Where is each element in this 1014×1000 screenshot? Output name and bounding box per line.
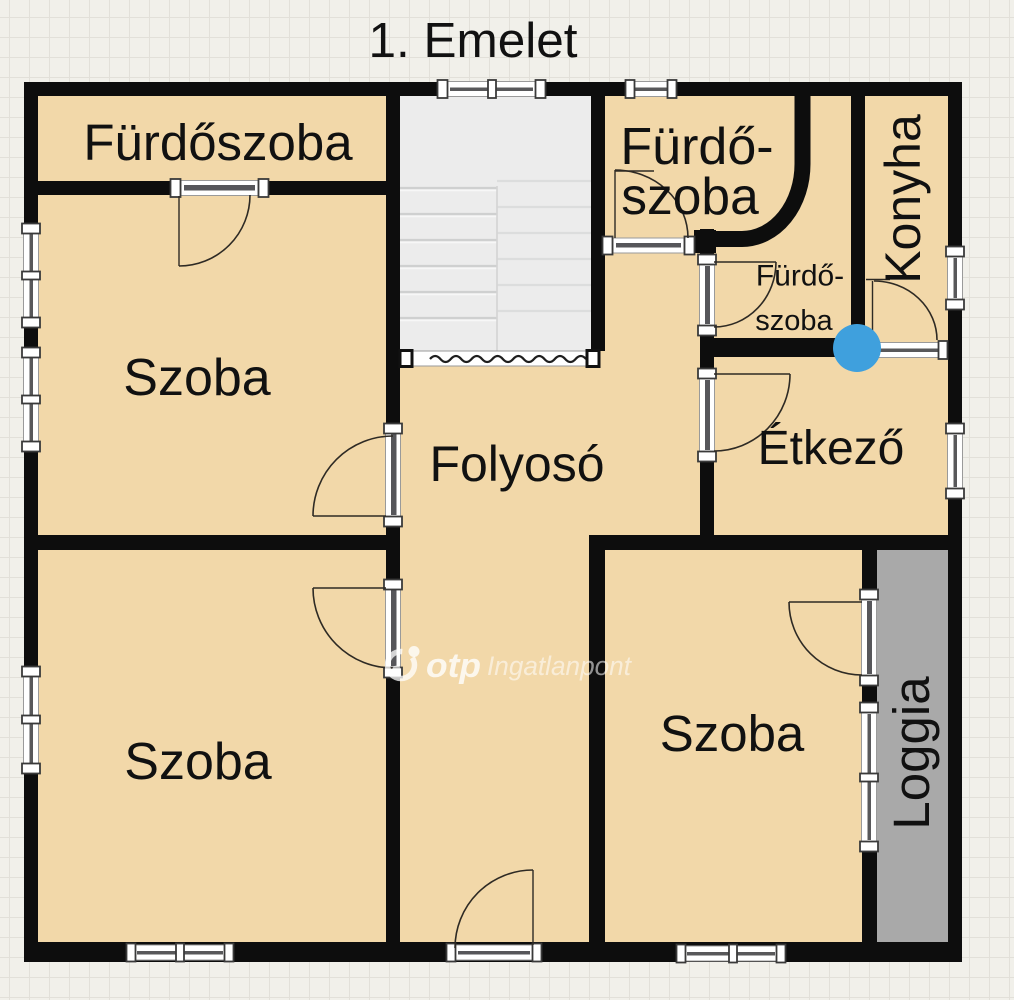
svg-text:otp: otp (426, 647, 481, 685)
svg-text:Ingatlanpont: Ingatlanpont (487, 651, 632, 681)
svg-text:Szoba: Szoba (124, 733, 272, 791)
svg-text:Folyosó: Folyosó (429, 436, 604, 492)
svg-text:Étkező: Étkező (758, 422, 905, 475)
svg-text:Szoba: Szoba (123, 349, 271, 407)
svg-text:Konyha: Konyha (875, 114, 931, 284)
svg-text:szoba: szoba (755, 305, 833, 337)
svg-text:szoba: szoba (621, 167, 759, 225)
svg-text:Loggia: Loggia (883, 676, 940, 830)
svg-text:Szoba: Szoba (660, 705, 805, 762)
svg-text:Fürdő-: Fürdő- (756, 260, 844, 293)
svg-text:Fürdőszoba: Fürdőszoba (83, 114, 353, 171)
svg-text:1. Emelet: 1. Emelet (368, 13, 577, 68)
